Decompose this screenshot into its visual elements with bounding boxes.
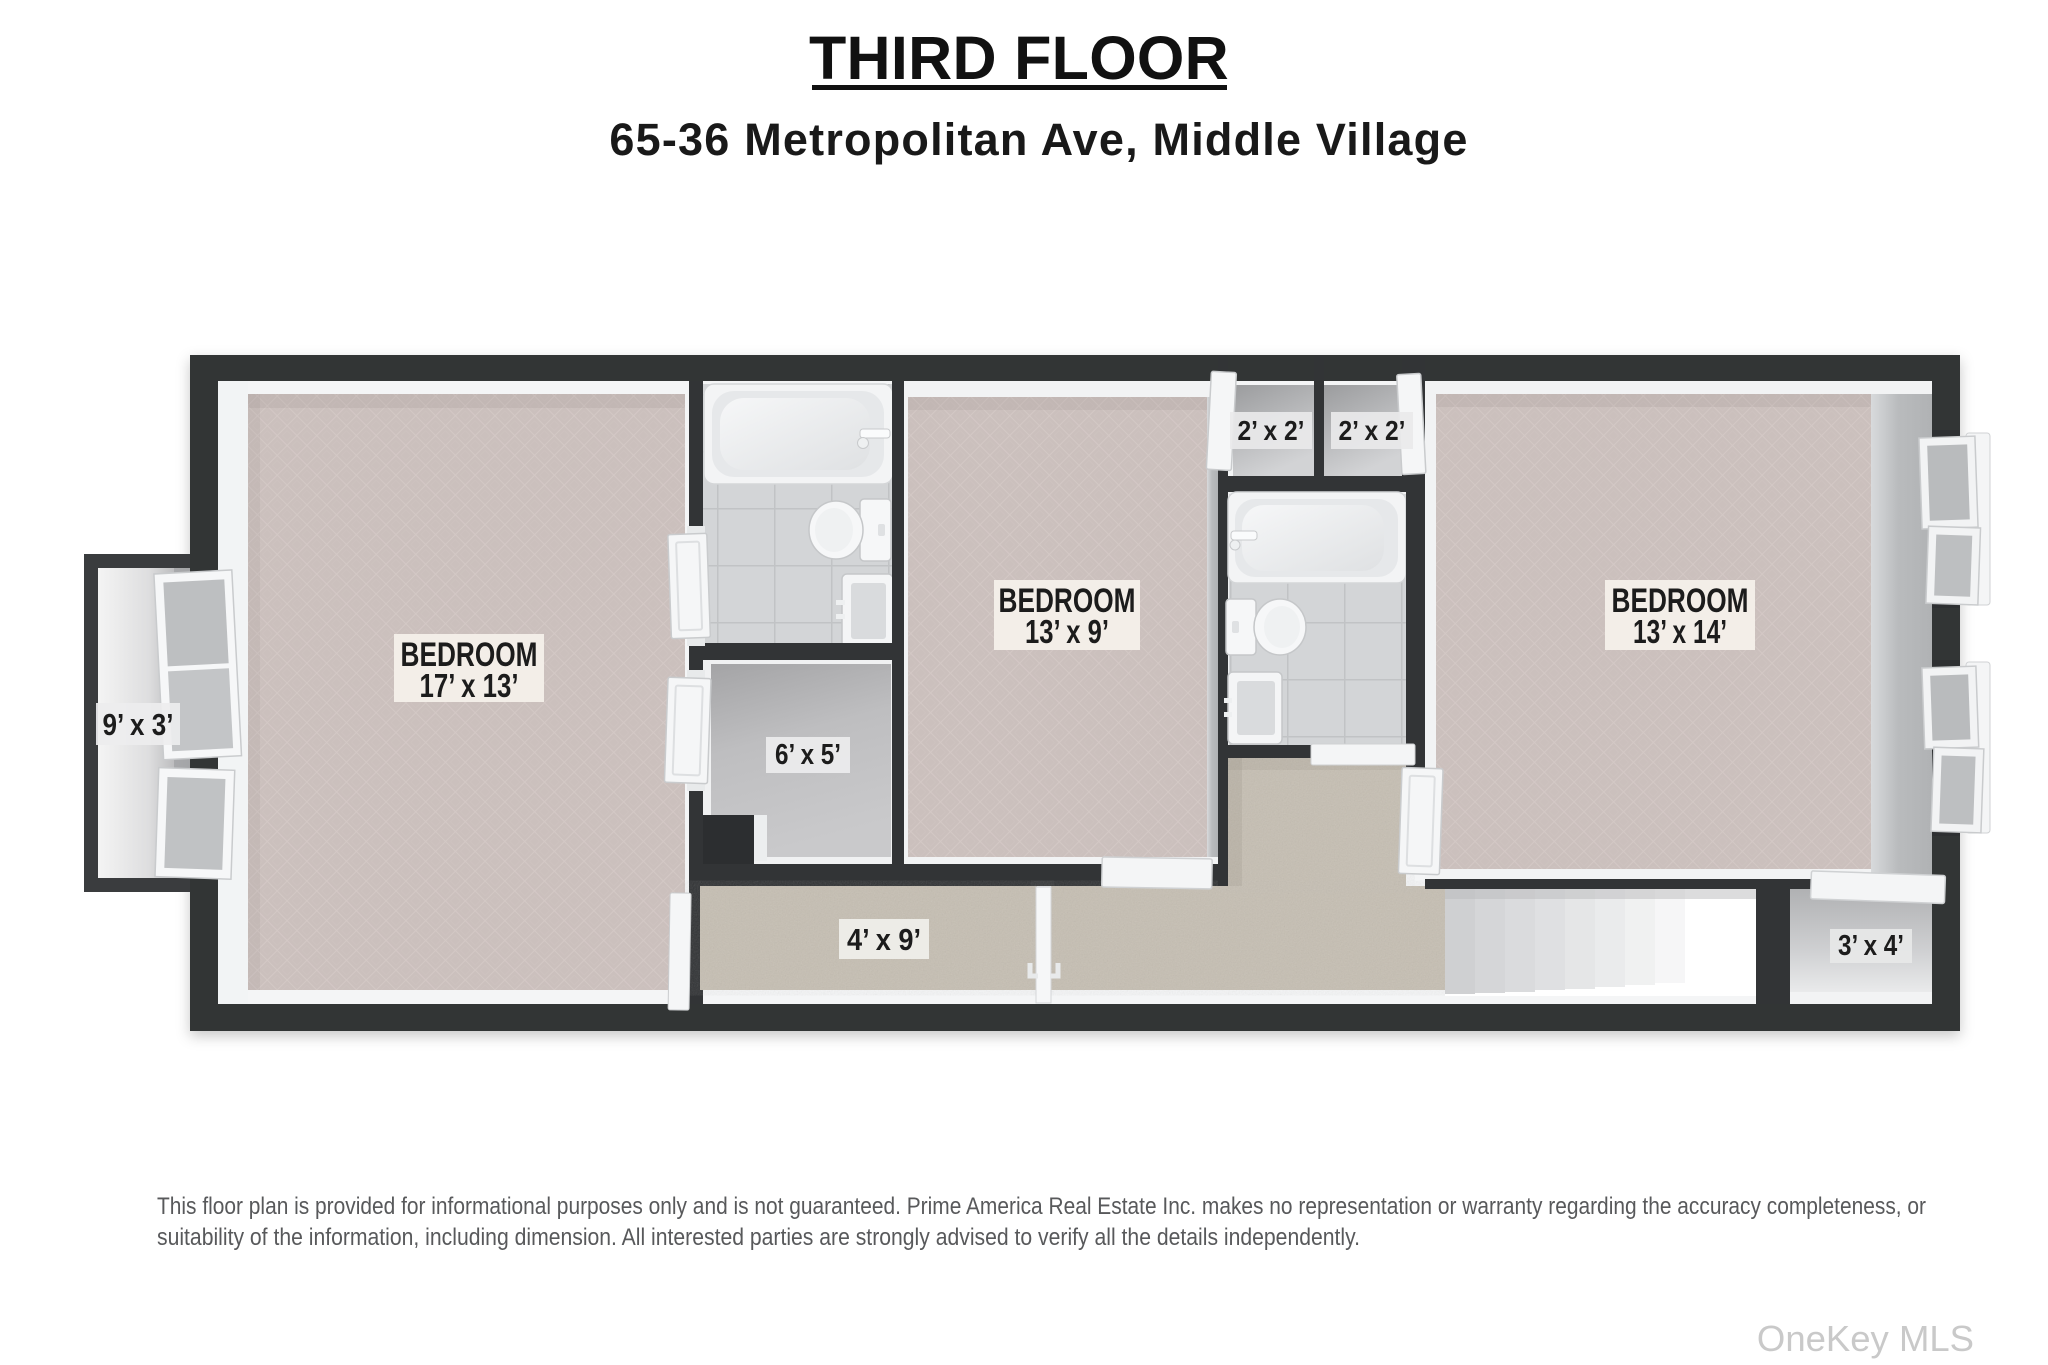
svg-text:OneKey MLS: OneKey MLS	[1757, 1318, 1974, 1359]
svg-text:17’ x 13’: 17’ x 13’	[420, 667, 519, 704]
svg-text:2’ x 2’: 2’ x 2’	[1339, 415, 1406, 446]
svg-text:3’ x 4’: 3’ x 4’	[1838, 930, 1904, 962]
svg-text:13’ x 14’: 13’ x 14’	[1633, 613, 1727, 650]
svg-text:9’ x 3’: 9’ x 3’	[103, 707, 174, 742]
svg-text:This floor plan is provided fo: This floor plan is provided for informat…	[157, 1193, 1926, 1220]
svg-text:THIRD FLOOR: THIRD FLOOR	[809, 24, 1229, 92]
svg-text:6’ x 5’: 6’ x 5’	[775, 739, 841, 771]
svg-text:4’ x 9’: 4’ x 9’	[847, 922, 921, 957]
svg-text:2’ x 2’: 2’ x 2’	[1238, 415, 1305, 446]
svg-text:suitability of the information: suitability of the information, includin…	[157, 1224, 1360, 1251]
svg-text:13’ x 9’: 13’ x 9’	[1025, 613, 1109, 650]
svg-text:65-36 Metropolitan Ave, Middle: 65-36 Metropolitan Ave, Middle Village	[609, 114, 1468, 165]
